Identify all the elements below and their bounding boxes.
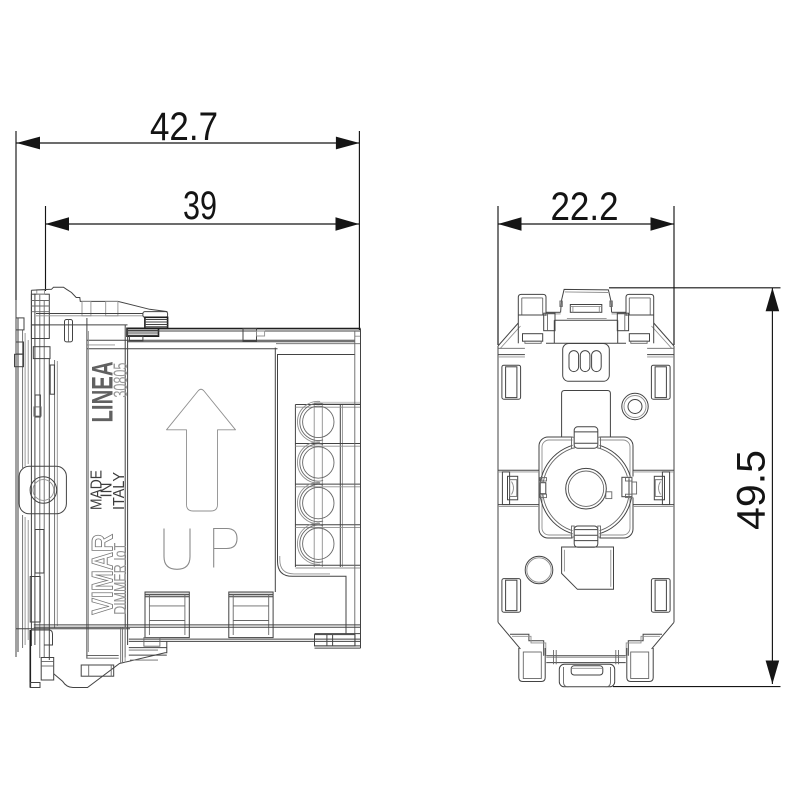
svg-text:39: 39 — [183, 184, 217, 228]
svg-text:22.2: 22.2 — [551, 185, 619, 229]
svg-text:49.5: 49.5 — [730, 450, 774, 530]
svg-text:DIMMER IoT: DIMMER IoT — [111, 543, 130, 615]
svg-text:ITALY: ITALY — [111, 472, 128, 510]
svg-text:42.7: 42.7 — [150, 105, 218, 149]
svg-text:30805: 30805 — [111, 363, 132, 398]
